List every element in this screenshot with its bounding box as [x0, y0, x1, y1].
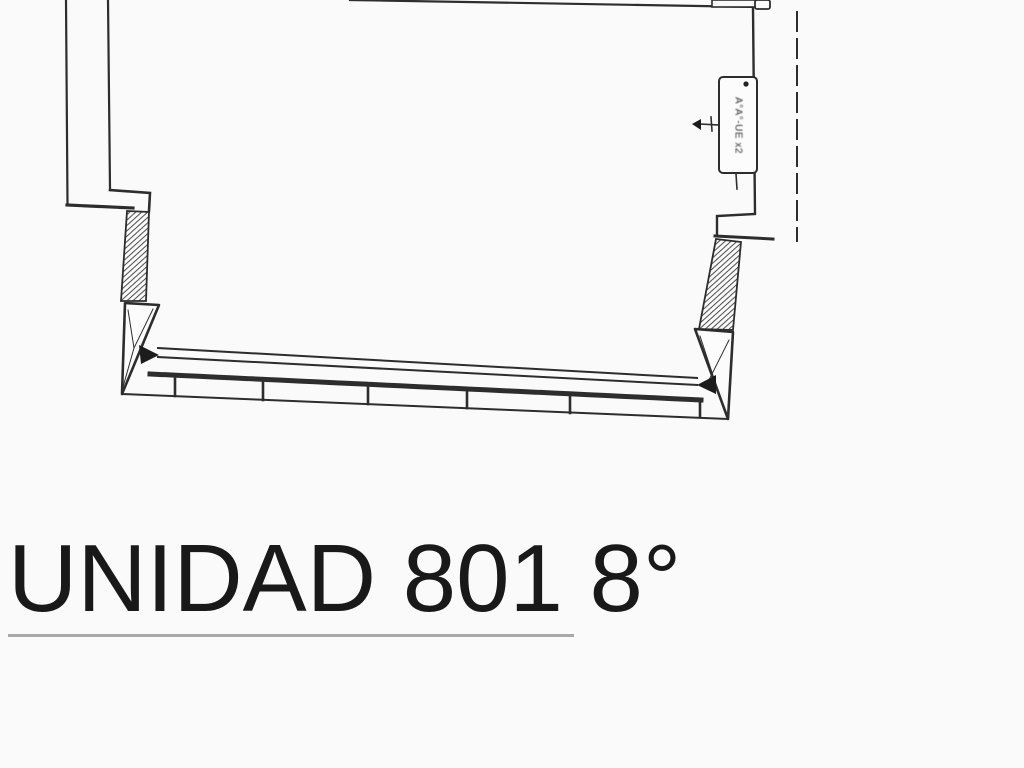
- unit-title: UNIDAD 801 8°: [8, 531, 681, 627]
- floor-plan-drawing: [0, 0, 1024, 768]
- right-hatched-wall: [699, 239, 741, 330]
- top-corner-block: [755, 0, 770, 9]
- balcony-railing: [122, 348, 727, 419]
- left-wall: [66, 0, 150, 211]
- top-wall: [350, 0, 770, 9]
- floor-plan-page: A°A°-UE x2 UNIDAD 801 8°: [0, 0, 1024, 768]
- right-railing-anchor-arrow: [697, 375, 716, 394]
- ac-box-connector: [736, 174, 737, 189]
- top-wall-lintel: [712, 0, 757, 7]
- ac-drain-arrow-icon: [692, 117, 719, 131]
- ac-unit-label: A°A°-UE x2: [719, 77, 757, 173]
- left-hatched-wall: [121, 211, 149, 301]
- title-underline: [8, 634, 574, 637]
- left-railing-anchor-arrow: [139, 345, 159, 364]
